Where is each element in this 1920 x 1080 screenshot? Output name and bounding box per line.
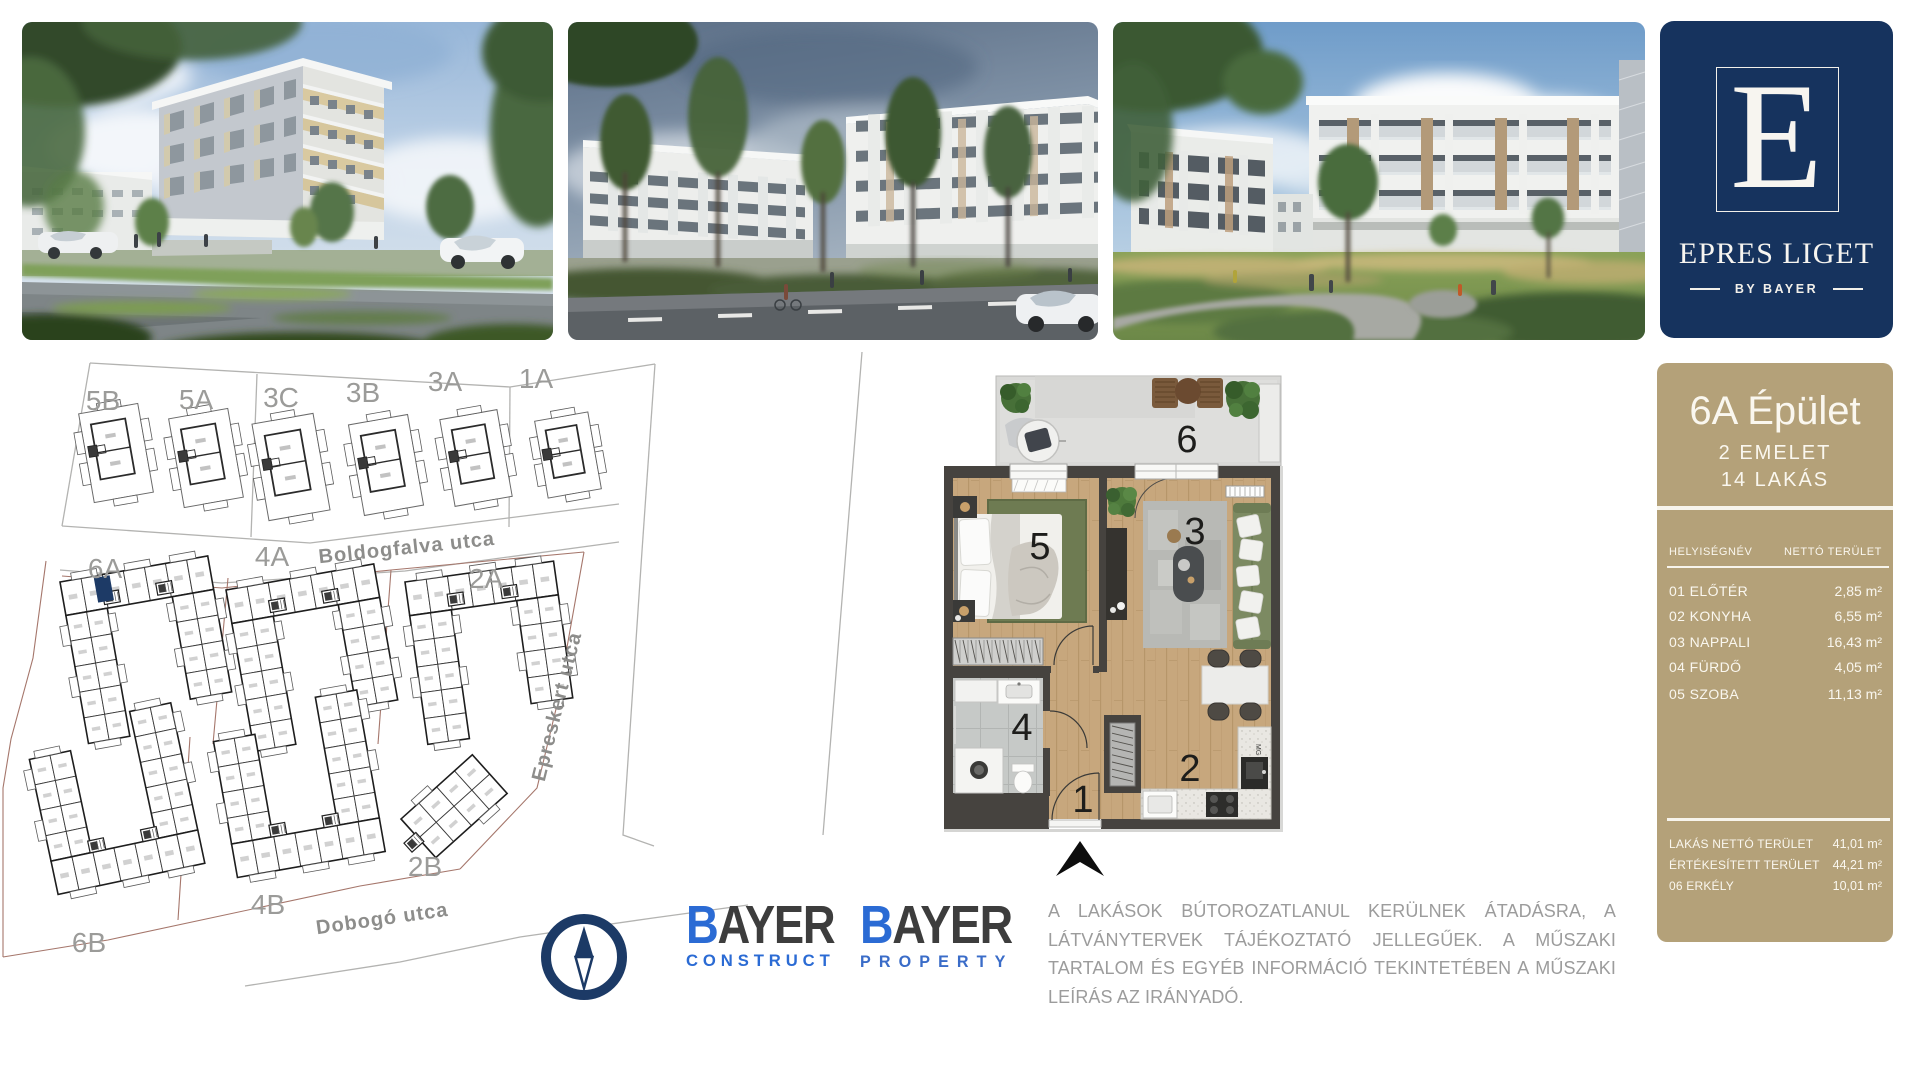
svg-text:2B: 2B [408,851,442,882]
svg-text:5: 5 [1029,526,1050,568]
svg-text:5B: 5B [86,385,120,416]
svg-text:6A: 6A [88,553,123,584]
svg-text:4: 4 [1011,707,1032,749]
svg-text:4B: 4B [251,889,285,920]
svg-text:4A: 4A [255,541,290,572]
svg-text:6B: 6B [72,927,106,958]
svg-text:MG: MG [1254,744,1261,755]
svg-text:6: 6 [1176,419,1197,461]
svg-text:Dobogó utca: Dobogó utca [315,899,450,939]
svg-text:1A: 1A [519,363,554,394]
svg-text:3B: 3B [346,377,380,408]
svg-text:3A: 3A [428,366,463,397]
svg-text:3C: 3C [263,382,299,413]
svg-text:5A: 5A [179,384,214,415]
svg-text:2A: 2A [469,563,504,594]
svg-text:2: 2 [1179,748,1200,790]
svg-text:3: 3 [1184,511,1205,553]
svg-text:1: 1 [1072,779,1093,821]
